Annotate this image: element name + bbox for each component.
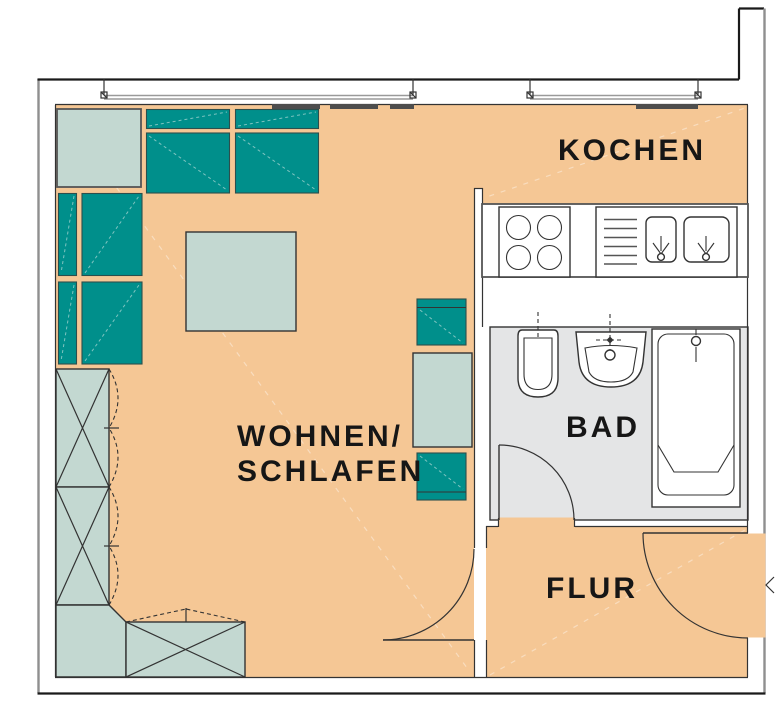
- window-kitchen: [527, 79, 701, 99]
- bathtub-tap: [692, 337, 701, 346]
- armchair-seat: [82, 282, 142, 364]
- basin-drain: [605, 350, 615, 360]
- cabinet-corner: [57, 109, 141, 187]
- armchair-seat: [82, 194, 142, 276]
- armchair-side: [59, 194, 77, 276]
- stove: [499, 207, 570, 277]
- sofa-seat: [147, 133, 230, 193]
- bathtub: [652, 329, 740, 507]
- toilet: [518, 312, 558, 397]
- window-living: [101, 79, 416, 99]
- bath-door-threshold: [499, 518, 575, 528]
- kitchen-counter: [482, 204, 748, 277]
- room-label-bad: BAD: [566, 411, 640, 444]
- radiator-segment: [390, 104, 414, 109]
- room-label-kochen: KOCHEN: [558, 134, 706, 167]
- sofa-backrest: [147, 110, 230, 129]
- dining-table: [413, 353, 472, 447]
- dining-chair: [417, 299, 466, 345]
- radiator-segment: [330, 104, 378, 109]
- entry-direction-chevron: [766, 577, 774, 593]
- room-label-flur: FLUR: [546, 572, 638, 605]
- radiator-segment: [272, 104, 320, 109]
- room-label-schlafen: SCHLAFEN: [237, 455, 424, 488]
- floor-plan-canvas: KOCHEN WOHNEN/ SCHLAFEN BAD FLUR: [0, 0, 775, 718]
- sofa-backrest: [236, 110, 319, 129]
- room-label-wohnen: WOHNEN/: [237, 420, 403, 453]
- coffee-table: [186, 232, 296, 331]
- dining-chair: [417, 453, 466, 500]
- sofa-seat: [236, 133, 319, 193]
- floor-plan: KOCHEN WOHNEN/ SCHLAFEN BAD FLUR: [0, 0, 775, 718]
- entry-door-opening: [748, 534, 766, 638]
- radiator-segment: [636, 104, 698, 109]
- wardrobe-corner-piece: [56, 605, 126, 677]
- washbasin: [576, 314, 646, 387]
